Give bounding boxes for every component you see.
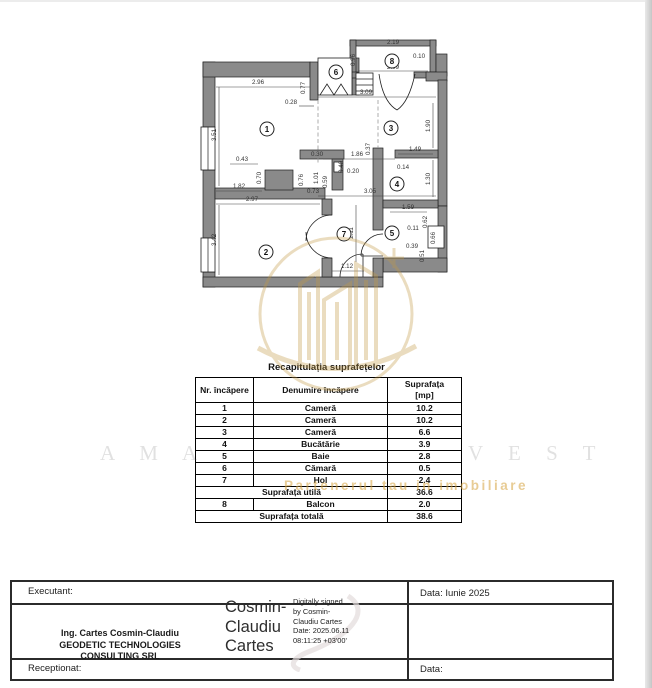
- dim-label: 0.73: [307, 188, 320, 195]
- digital-signature-details: Digitally signed by Cosmin- Claudiu Cart…: [293, 597, 349, 646]
- digital-detail-line: Date: 2025.06.11: [293, 626, 349, 636]
- dim-label: 3.05: [364, 188, 377, 195]
- dim-label: 1.30: [425, 172, 432, 185]
- dim-label: 1.49: [409, 146, 422, 153]
- double-door-arc: [306, 232, 332, 258]
- dim-label: 0.76: [298, 173, 305, 186]
- footer-line: [10, 580, 614, 582]
- digital-detail-line: Digitally signed: [293, 597, 349, 607]
- header-area-line1: Suprafața: [388, 379, 461, 390]
- room-number: 5: [390, 229, 395, 238]
- dim-label: 3.42: [211, 233, 218, 246]
- dim-label: 3.09: [360, 89, 373, 96]
- dim-label: 1.59: [402, 204, 415, 211]
- dim-label: 0.77: [300, 81, 307, 94]
- signature-line: Claudiu: [225, 618, 286, 638]
- signature-line: Cartes: [225, 637, 286, 657]
- footer-line: [10, 679, 614, 681]
- table-row: 5Baie2.8: [196, 451, 462, 463]
- dim-label: 2.96: [252, 79, 265, 86]
- header-area-line2: [mp]: [388, 390, 461, 401]
- dim-label: 0.70: [256, 171, 263, 184]
- dim-label: 0.28: [285, 99, 298, 106]
- dim-label: 1.90: [425, 119, 432, 132]
- room-number: 7: [342, 230, 347, 239]
- scan-right-shadow: [645, 0, 652, 688]
- watermark-text-right: V E S T: [468, 441, 606, 466]
- scanned-floor-plan-document: { "plan": { "rooms": ["1","2","3","4","5…: [0, 0, 652, 688]
- room-number: 8: [390, 57, 395, 66]
- footer-divider: [407, 580, 409, 681]
- dim-label: 0.66: [430, 231, 437, 244]
- executant-label: Executant:: [28, 586, 73, 597]
- recap-title: Recapitulația suprafețelor: [195, 362, 458, 373]
- room-number: 2: [264, 248, 269, 257]
- receptionat-label: Receptionat:: [28, 663, 81, 674]
- digital-detail-line: Claudiu Cartes: [293, 617, 349, 627]
- table-row: 1Cameră10.2: [196, 403, 462, 415]
- room-number: 3: [389, 124, 394, 133]
- dim-label: 3.51: [211, 128, 218, 141]
- dim-label: 0.39: [406, 243, 419, 250]
- date-receptionat: Data:: [420, 664, 443, 675]
- room-number: 4: [395, 180, 400, 189]
- digital-signature-name: Cosmin- Claudiu Cartes: [225, 598, 286, 657]
- balcony-door-arc: [379, 74, 397, 110]
- digital-detail-line: 08:11:25 +03'00': [293, 636, 349, 646]
- dim-label: 0.10: [413, 53, 426, 60]
- floor-plan-drawing: 2.96 3.51 0.77 0.28 3.09 1.90 2.19 0.96 …: [183, 35, 453, 290]
- footer-border-right: [612, 580, 614, 681]
- dim-label: 0.59: [322, 175, 329, 188]
- header-name: Denumire încăpere: [254, 378, 388, 403]
- dim-label: 0.30: [311, 151, 324, 158]
- table-header-row: Nr. încăpere Denumire încăpere Suprafața…: [196, 378, 462, 403]
- room-number: 6: [334, 68, 339, 77]
- door-swings: [306, 74, 415, 277]
- dim-label: 0.51: [419, 249, 426, 262]
- table-row-total: Suprafața totală38.6: [196, 511, 462, 523]
- table-row: 6Cămară0.5: [196, 463, 462, 475]
- dim-label: 0.62: [422, 215, 429, 228]
- watermark-text-left: A M A: [100, 441, 207, 466]
- digital-detail-line: by Cosmin-: [293, 607, 349, 617]
- table-row-util: Suprafața utilă36.6: [196, 487, 462, 499]
- dim-label: 0.43: [236, 156, 249, 163]
- dim-label: 1.82: [233, 183, 246, 190]
- dim-label: 0.37: [365, 142, 372, 155]
- dim-label: 1.01: [313, 171, 320, 184]
- signature-line: Cosmin-: [225, 598, 286, 618]
- table-row-balcon: 8Balcon2.0: [196, 499, 462, 511]
- engineer-name: Ing. Cartes Cosmin-Claudiu: [30, 628, 210, 640]
- balcony-door-arc: [397, 74, 415, 110]
- room-number: 1: [265, 125, 270, 134]
- dim-label: 0.96: [350, 53, 357, 66]
- date-executant: Data: Iunie 2025: [420, 588, 490, 599]
- footer-border-left: [10, 580, 12, 681]
- table-row: 4Bucătărie3.9: [196, 439, 462, 451]
- executant-identity: Ing. Cartes Cosmin-Claudiu GEODETIC TECH…: [30, 628, 210, 663]
- table-row: 2Cameră10.2: [196, 415, 462, 427]
- table-row: 3Cameră6.6: [196, 427, 462, 439]
- bath-door-arc: [361, 234, 383, 256]
- dim-label: 1.86: [351, 151, 364, 158]
- header-area: Suprafața [mp]: [388, 378, 462, 403]
- dim-label: 0.11: [407, 225, 419, 232]
- scan-top-edge: [0, 0, 652, 2]
- dim-label: 1.12: [341, 263, 354, 270]
- engineer-company: GEODETIC TECHNOLOGIES CONSULTING SRL: [30, 640, 210, 663]
- dim-label: 0.20: [347, 168, 360, 175]
- dim-label: 2.19: [387, 39, 400, 46]
- dim-label: 0.14: [397, 164, 410, 171]
- dim-label: 0.40: [338, 160, 345, 173]
- table-row: 7Hol2.4: [196, 475, 462, 487]
- area-recap-table: Nr. încăpere Denumire încăpere Suprafața…: [195, 377, 462, 523]
- double-door-arc: [306, 215, 332, 241]
- header-nr: Nr. încăpere: [196, 378, 254, 403]
- dim-label: 2.97: [246, 196, 259, 203]
